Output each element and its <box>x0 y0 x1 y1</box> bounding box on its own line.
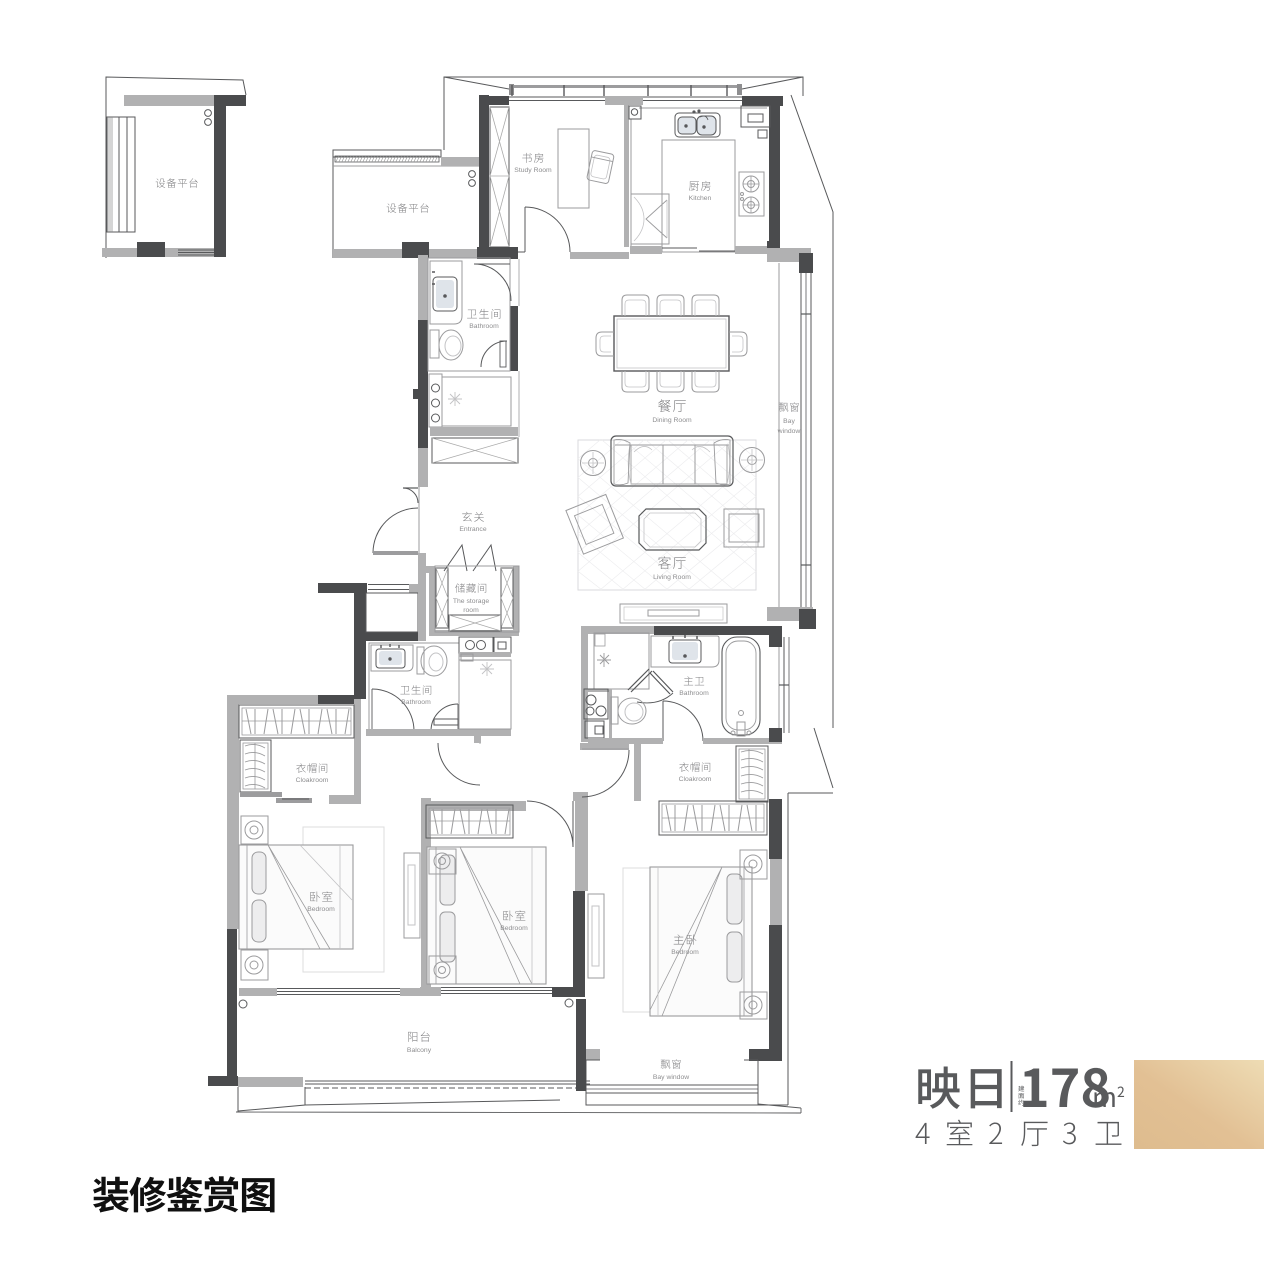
svg-text:Dining Room: Dining Room <box>652 417 692 424</box>
svg-text:Kitchen: Kitchen <box>689 195 712 202</box>
svg-text:window: window <box>777 428 801 435</box>
svg-text:Entrance: Entrance <box>459 526 486 533</box>
svg-text:Balcony: Balcony <box>407 1047 432 1054</box>
svg-text:Bedroom: Bedroom <box>307 906 335 913</box>
svg-text:Bay window: Bay window <box>653 1074 689 1081</box>
svg-text:Living Room: Living Room <box>653 574 691 581</box>
svg-text:Bedroom: Bedroom <box>500 925 528 932</box>
svg-text:Bathroom: Bathroom <box>679 690 709 697</box>
svg-text:Cloakroom: Cloakroom <box>296 777 329 784</box>
svg-text:Cloakroom: Cloakroom <box>679 776 712 783</box>
svg-text:Bathroom: Bathroom <box>401 699 431 706</box>
svg-text:Bay: Bay <box>783 418 795 425</box>
svg-text:room: room <box>463 607 479 614</box>
svg-text:The storage: The storage <box>453 598 489 605</box>
svg-text:Bathroom: Bathroom <box>469 323 499 330</box>
svg-text:Study Room: Study Room <box>514 167 552 174</box>
svg-text:Bedroom: Bedroom <box>671 949 699 956</box>
